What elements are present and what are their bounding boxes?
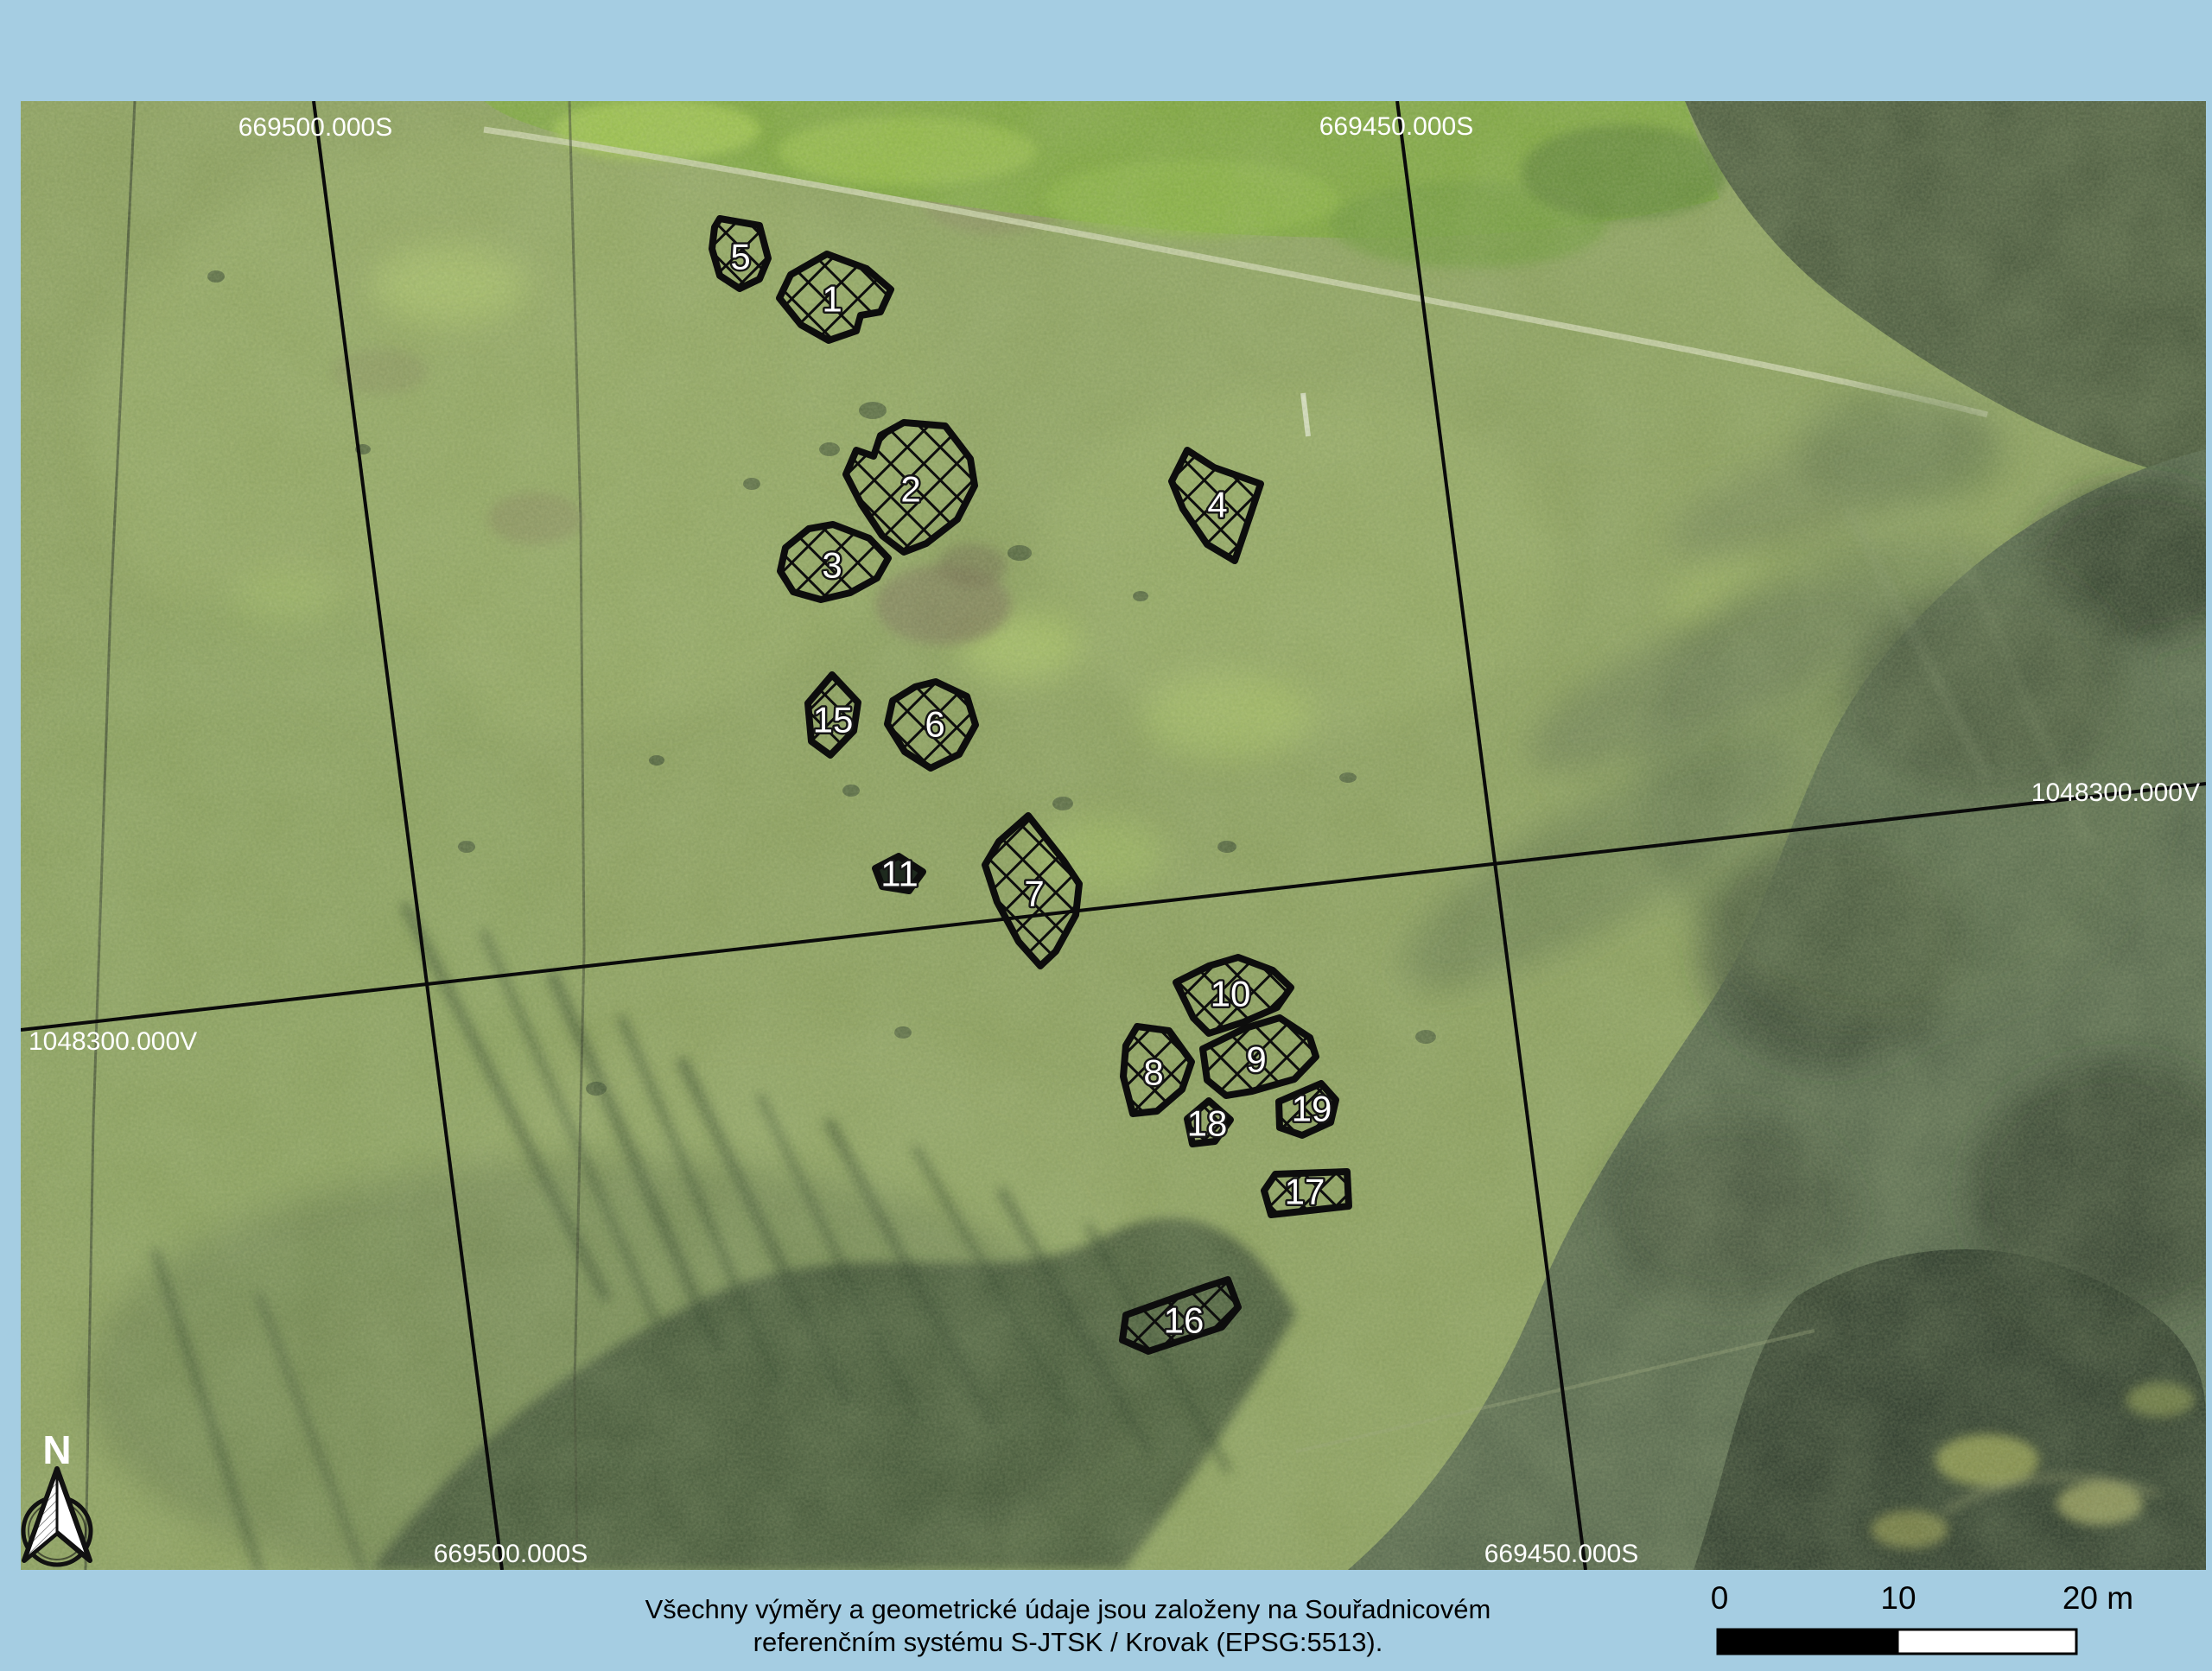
scale-bar-segment-black — [1718, 1630, 1897, 1654]
area-label-16: 16 — [1164, 1300, 1205, 1341]
caption-line-1: Všechny výměry a geometrické údaje jsou … — [645, 1594, 1491, 1624]
scale-bar-tick-20m: 20 m — [2063, 1580, 2133, 1616]
map-canvas[interactable]: 12345678910111516171819 669500.000S66945… — [0, 0, 2212, 1671]
area-label-10: 10 — [1211, 974, 1251, 1014]
grid-label-left: 1048300.000V — [29, 1027, 197, 1056]
scale-bar-tick-0: 0 — [1711, 1580, 1729, 1616]
area-label-17: 17 — [1285, 1172, 1325, 1212]
area-polygon-17[interactable]: 17 — [1264, 1172, 1349, 1216]
grid-label-right: 1048300.000V — [2031, 778, 2200, 807]
area-polygon-18[interactable]: 18 — [1187, 1101, 1230, 1144]
grid-label-top-right: 669450.000S — [1319, 112, 1474, 141]
scale-bar-segment-white — [1897, 1630, 2076, 1654]
north-arrow-label: N — [42, 1427, 71, 1472]
area-label-15: 15 — [813, 700, 854, 740]
area-polygon-11[interactable]: 11 — [875, 854, 923, 894]
grid-label-bottom-right: 669450.000S — [1484, 1540, 1639, 1568]
area-label-8: 8 — [1143, 1052, 1163, 1093]
area-label-2: 2 — [900, 469, 920, 510]
photo-grain-dark — [21, 101, 2206, 1570]
area-label-6: 6 — [925, 704, 944, 745]
scale-bar-tick-10: 10 — [1880, 1580, 1916, 1616]
area-label-9: 9 — [1246, 1039, 1266, 1080]
area-label-7: 7 — [1024, 874, 1044, 914]
area-label-19: 19 — [1292, 1089, 1332, 1129]
area-label-5: 5 — [730, 237, 750, 277]
grid-label-top-left: 669500.000S — [238, 113, 393, 142]
area-label-3: 3 — [822, 545, 842, 586]
area-label-1: 1 — [822, 279, 842, 320]
caption-line-2: referenčním systému S-JTSK / Krovak (EPS… — [753, 1627, 1383, 1657]
area-polygon-5[interactable]: 5 — [712, 219, 768, 289]
area-label-18: 18 — [1187, 1103, 1228, 1144]
orthophoto-layer — [0, 99, 2212, 1607]
grid-label-bottom-left: 669500.000S — [434, 1540, 588, 1568]
map-export-page: 12345678910111516171819 669500.000S66945… — [0, 0, 2212, 1671]
area-label-4: 4 — [1207, 485, 1227, 525]
area-label-11: 11 — [880, 854, 918, 894]
